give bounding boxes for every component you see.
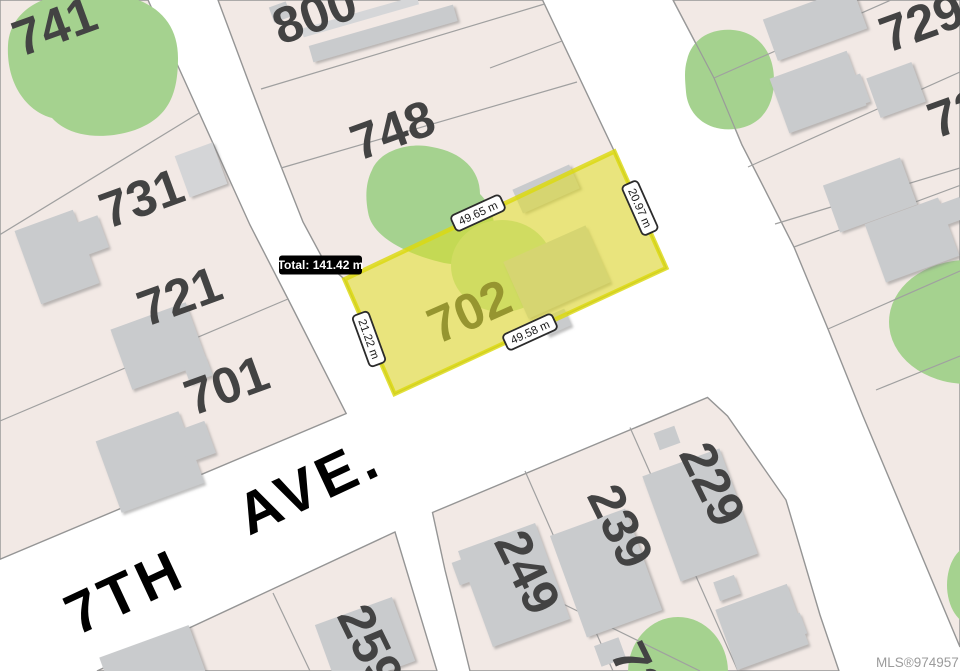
svg-text:Total: 141.42 m: Total: 141.42 m xyxy=(278,258,364,272)
svg-text:MLS®974957: MLS®974957 xyxy=(876,655,959,670)
